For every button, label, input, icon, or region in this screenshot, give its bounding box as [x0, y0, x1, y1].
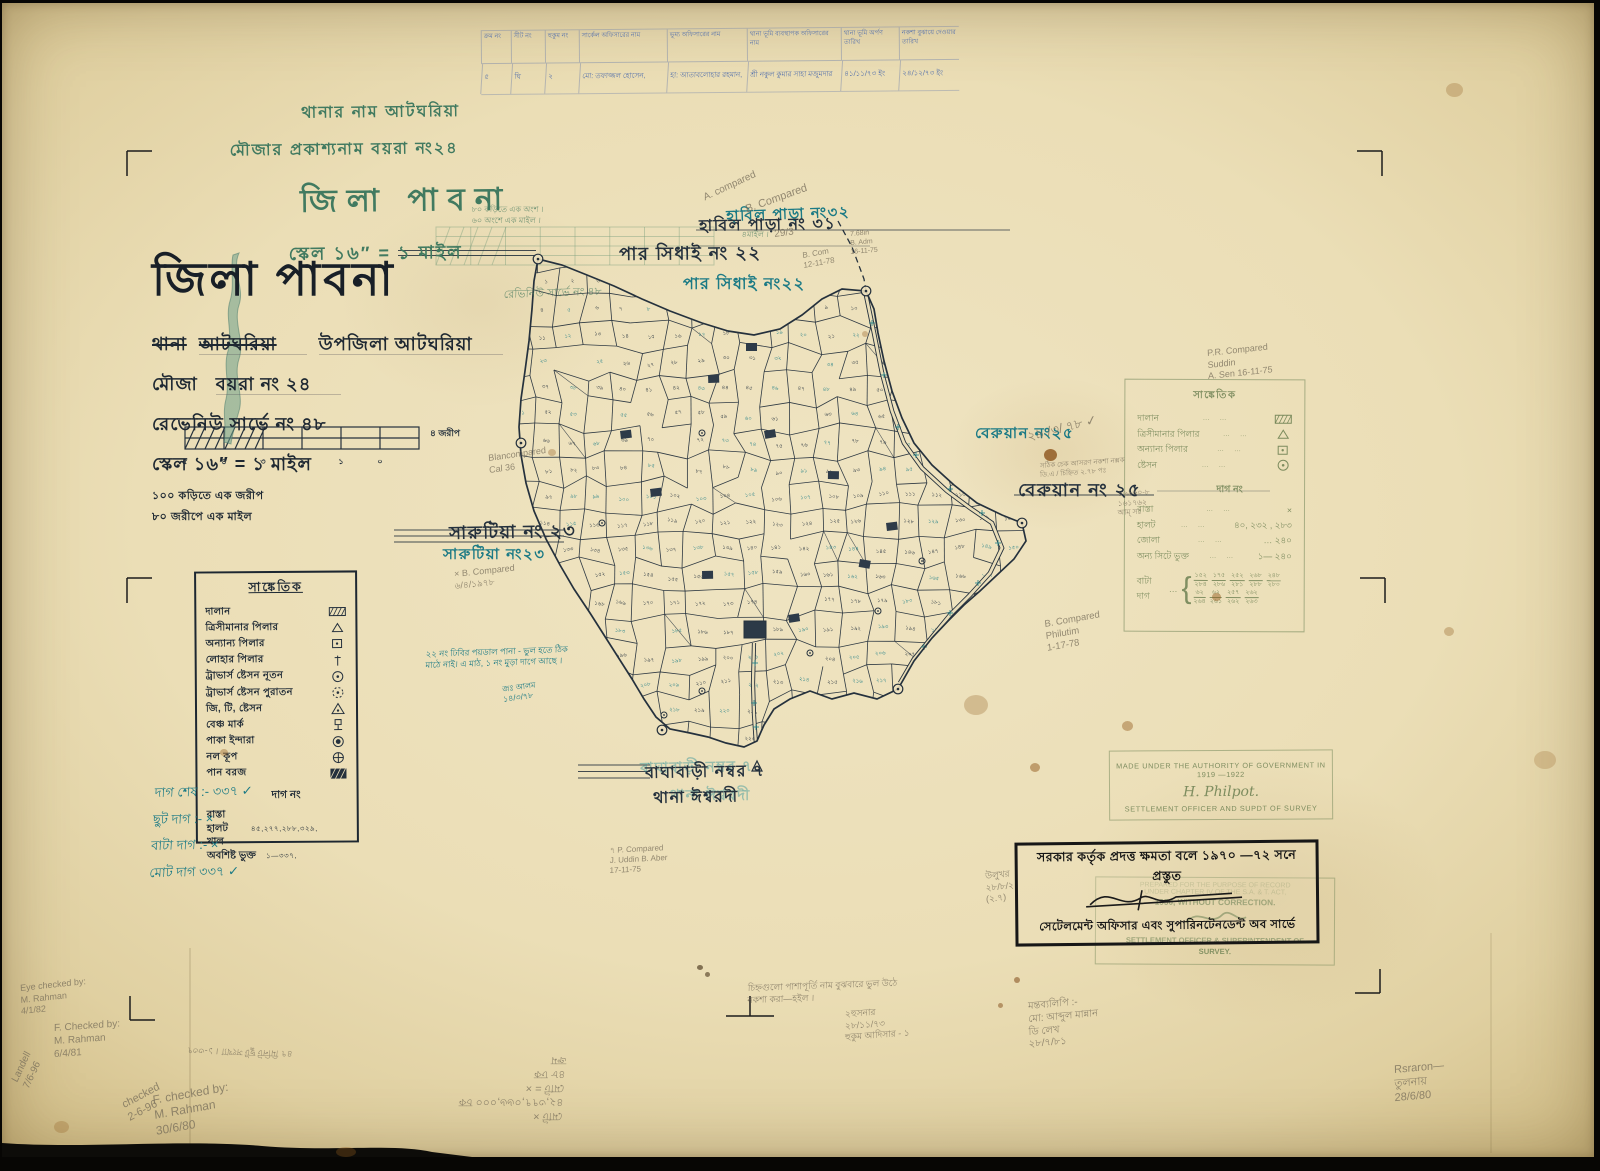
annotation-note: F. checked by: M. Rahman 30/6/80	[152, 1080, 232, 1139]
annotation-note: চিহ্নগুলো পাশাপূর্তি নাম বুঝবারে ভুল উঠে…	[747, 978, 897, 1006]
stamp-bn-signature	[1082, 887, 1252, 913]
annotation-note: ৪মাইল ।	[741, 230, 769, 240]
handwritten-annotations: ৮০ কড়িতে এক অংশ ।৬০ অংশে এক মাইল ।৪মাইল…	[2, 3, 1594, 1157]
annotation-note: ২৯ /৩/ ৭৮ ✓	[1026, 412, 1098, 446]
annotation-note: Eye checked by: M. Rahman 4/1/82	[20, 976, 87, 1018]
annotation-note: মোট × ৪২,৩৭৭,০৬৬,০০০ চক মোট = × ৪৮ ঢক ক্…	[457, 1053, 566, 1123]
annotation-note: সঠিক চেক আসরণ নকশা নক্সক ডি.এ / চিহ্নিত …	[1040, 457, 1125, 481]
annotation-note: A. compared	[702, 169, 758, 205]
stamp-bn-line2: সেটেলমেন্ট অফিসার এবং সুপারিনটেনডেন্ট অব…	[1026, 916, 1308, 938]
annotation-note: মন্তব্যলিপি :- মো: আব্দুল মান্নান ডি লেখ…	[1028, 995, 1099, 1052]
annotation-note: ৬০ অংশে এক মাইল ।	[471, 216, 541, 226]
tally-line: দাগ শেষ :- ৩৩৭ ✓	[154, 778, 254, 807]
plot-tally: দাগ শেষ :- ৩৩৭ ✓ছুট দাগ :- ×বাটা দাগ :- …	[148, 778, 253, 887]
annotation-note: × B. Compared ৬/৪/১৯৭৮	[454, 563, 515, 592]
tally-line: বাটা দাগ :- ×	[150, 831, 250, 860]
annotation-note: উলুখর ২৮/৮/২ (২.৭)	[985, 868, 1014, 906]
annotation-note: 29/3	[774, 226, 794, 242]
annotation-note: Blancompared Cal 36	[488, 445, 547, 476]
tally-line: ছুট দাগ :- ×	[152, 805, 252, 834]
stamp-ov-line5: SURVEY.	[1096, 946, 1334, 956]
annotation-note: রেভিনিউ সার্ভে নং ৪৮	[504, 285, 602, 303]
annotation-note: P.R. Compared Suddin A. Sen 16-11-75	[1207, 341, 1273, 382]
annotation-note: Landell 7/6-96	[10, 1050, 46, 1092]
tally-line: মোট দাগ ৩৩৭ ✓	[148, 858, 248, 887]
bengali-authority-stamp: সরকার কর্তৃক প্রদত্ত ক্ষমতা বলে ১৯৭০ —৭২…	[1014, 839, 1319, 946]
annotation-note: B. Compared Philutim 1-17-78	[1044, 609, 1103, 655]
annotation-note: ২২ নং ঢিবির পয়ডাল পানা - ভুল হতে ঠিক মা…	[425, 644, 568, 671]
annotation-note: ৭ P. Compared J. Uddin B. Aber 17-11-75	[609, 843, 667, 877]
annotation-note: B. Com 12-11-78	[802, 246, 835, 272]
annotation-note: ৪৭ মিনিট ছুট সংখ্যা । ১-৩৩৭	[187, 1044, 294, 1059]
annotation-note: ১৬৯৬০-৮ ১৬১৭৬২ আম্ সঃ	[1117, 487, 1149, 518]
annotation-note: F. Checked by: M. Rahman 6/4/81	[54, 1018, 120, 1061]
annotation-note: 7.68in B. Adm 16-11-75	[850, 229, 878, 258]
annotation-note: B. Compared	[744, 181, 809, 217]
stamp-bn-line1: সরকার কর্তৃক প্রদত্ত ক্ষমতা বলে ১৯৭০ —৭২…	[1026, 847, 1308, 890]
map-sheet: ৫৪৩২১০৪ জরীপ১২৩৪৫৬৭৮৯১০১১১২১৩১৪১৫১৬১৭১৮১…	[2, 3, 1594, 1157]
annotation-note: ২হুসনার ২৮/১১/৭৩ হুকুম আদিসার - ১	[845, 1004, 910, 1043]
annotation-note: Rsraron— তুলনায় 28/6/80	[1394, 1059, 1445, 1106]
annotation-note: জঃ আলম ১৪/৩/৭৮	[502, 680, 536, 705]
annotation-note: ৮০ কড়িতে এক অংশ ।	[471, 205, 543, 215]
